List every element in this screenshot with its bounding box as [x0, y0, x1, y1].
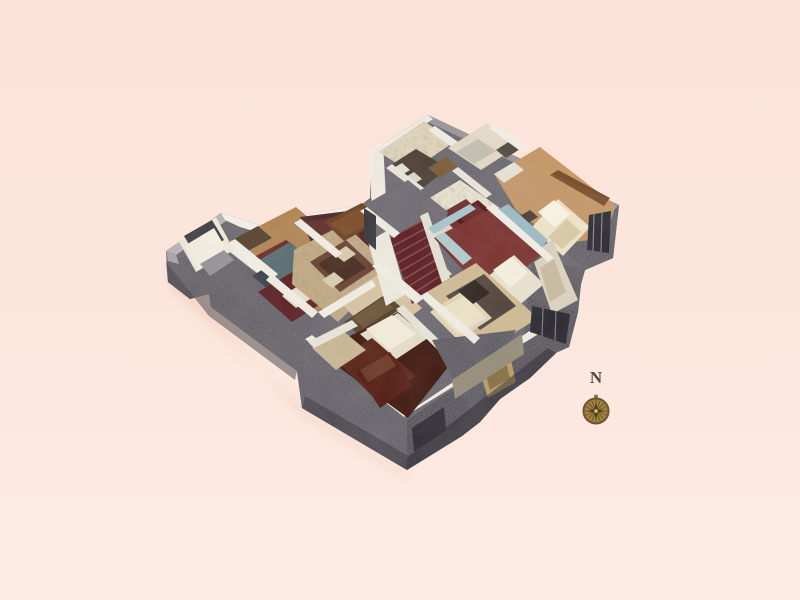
- svg-text:N: N: [590, 368, 603, 387]
